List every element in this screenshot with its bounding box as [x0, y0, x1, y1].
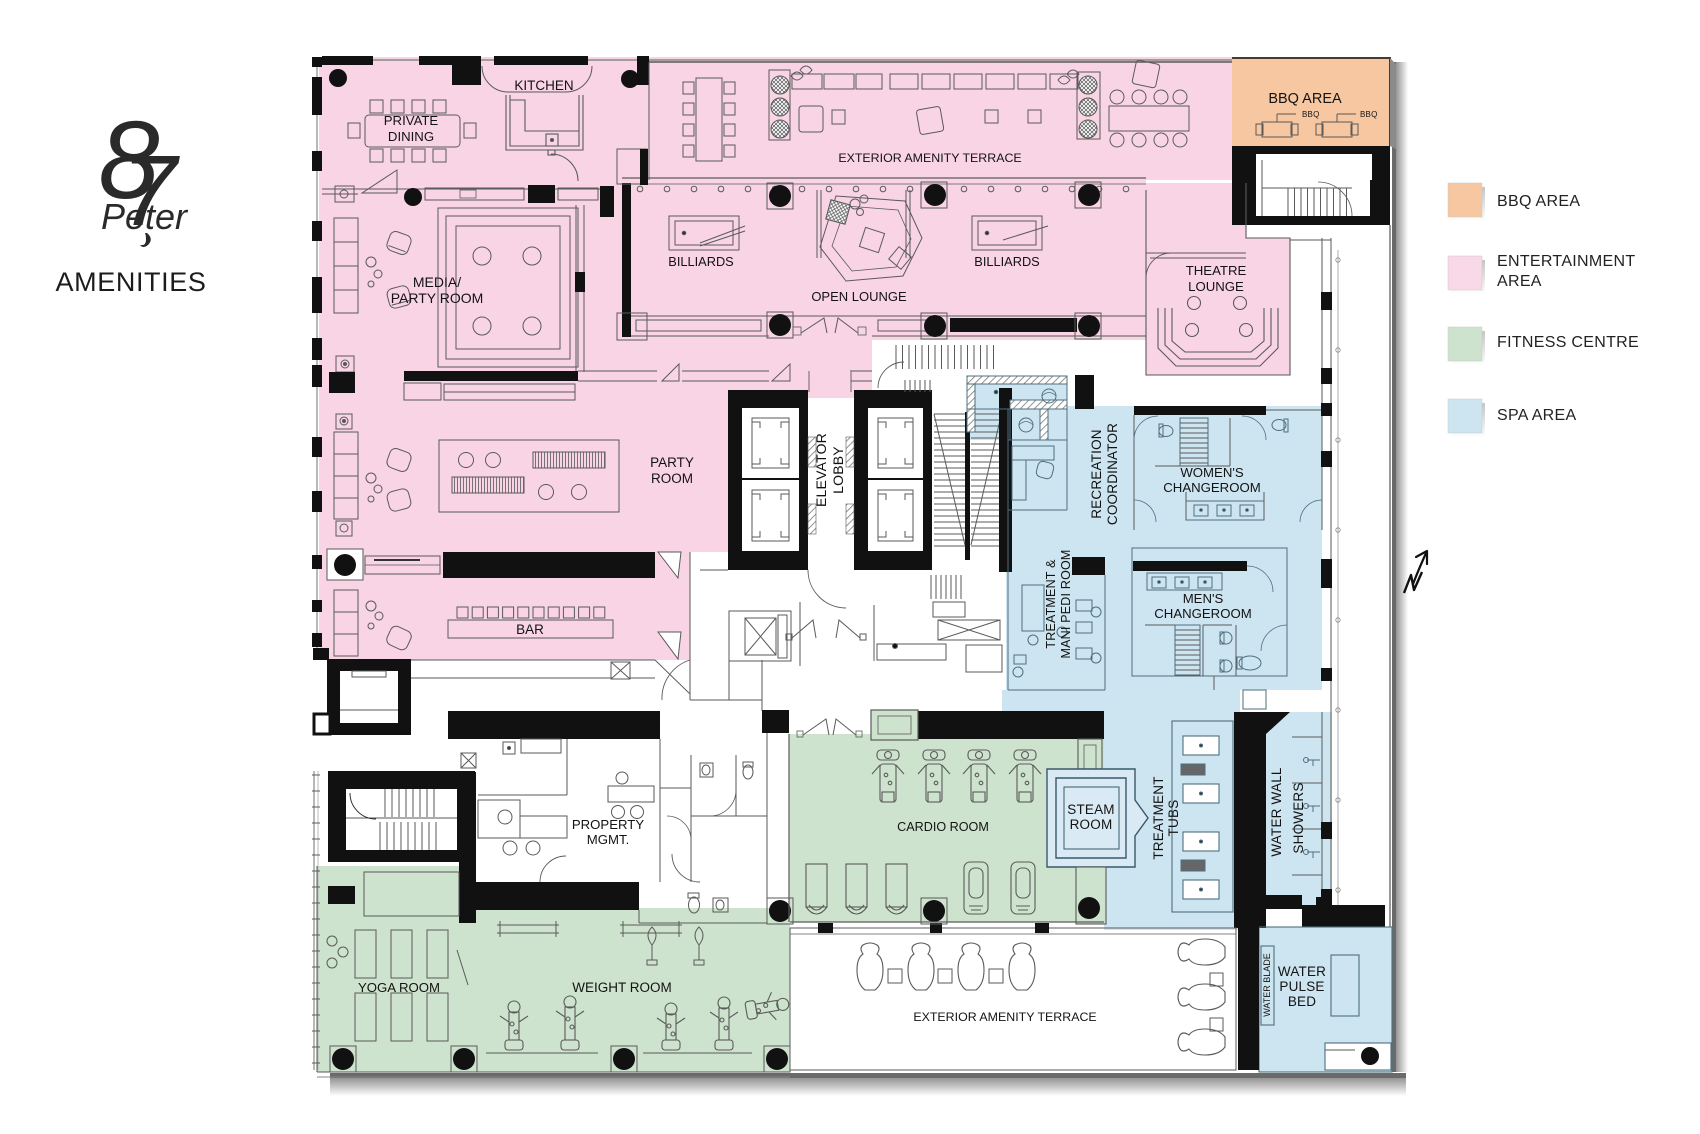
svg-text:ROOM: ROOM [1070, 817, 1113, 832]
svg-text:RECREATION: RECREATION [1089, 429, 1104, 519]
svg-text:SHOWERS: SHOWERS [1291, 782, 1306, 853]
svg-text:MANI PEDI ROOM: MANI PEDI ROOM [1059, 549, 1073, 658]
svg-text:BILLIARDS: BILLIARDS [974, 254, 1039, 269]
svg-text:MGMT.: MGMT. [587, 832, 630, 847]
svg-text:PROPERTY: PROPERTY [572, 817, 645, 832]
svg-text:YOGA ROOM: YOGA ROOM [358, 980, 440, 995]
svg-text:ENTERTAINMENT: ENTERTAINMENT [1497, 253, 1635, 270]
svg-text:CARDIO ROOM: CARDIO ROOM [897, 820, 989, 834]
svg-text:BBQ AREA: BBQ AREA [1497, 193, 1580, 210]
svg-text:COORDINATOR: COORDINATOR [1105, 423, 1120, 525]
svg-text:LOUNGE: LOUNGE [1188, 279, 1244, 294]
svg-text:CHANGEROOM: CHANGEROOM [1163, 480, 1260, 495]
svg-text:TUBS: TUBS [1166, 800, 1181, 837]
svg-text:TREATMENT: TREATMENT [1151, 776, 1166, 859]
svg-text:EXTERIOR AMENITY TERRACE: EXTERIOR AMENITY TERRACE [838, 151, 1021, 165]
svg-text:OPEN LOUNGE: OPEN LOUNGE [811, 289, 907, 304]
svg-text:BBQ AREA: BBQ AREA [1268, 91, 1342, 107]
svg-text:KITCHEN: KITCHEN [514, 78, 573, 93]
svg-text:WATER BLADE: WATER BLADE [1262, 953, 1272, 1017]
svg-text:WATER WALL: WATER WALL [1269, 767, 1284, 857]
svg-text:CHANGEROOM: CHANGEROOM [1154, 606, 1251, 621]
svg-text:BAR: BAR [516, 622, 544, 637]
svg-text:WEIGHT ROOM: WEIGHT ROOM [572, 980, 672, 995]
svg-text:SPA AREA: SPA AREA [1497, 407, 1577, 424]
svg-text:Peter: Peter [101, 196, 189, 237]
svg-text:BBQ: BBQ [1302, 110, 1320, 119]
svg-text:PARTY ROOM: PARTY ROOM [391, 290, 484, 306]
svg-text:EXTERIOR AMENITY TERRACE: EXTERIOR AMENITY TERRACE [913, 1010, 1096, 1024]
svg-text:TREATMENT &: TREATMENT & [1044, 559, 1058, 649]
svg-text:THEATRE: THEATRE [1186, 263, 1247, 278]
svg-text:BED: BED [1288, 994, 1316, 1009]
svg-text:ROOM: ROOM [651, 471, 693, 486]
svg-text:WOMEN'S: WOMEN'S [1180, 465, 1244, 480]
svg-text:PRIVATE: PRIVATE [384, 113, 439, 128]
svg-text:BILLIARDS: BILLIARDS [668, 254, 733, 269]
svg-text:PULSE: PULSE [1279, 979, 1324, 994]
svg-text:BBQ: BBQ [1360, 110, 1378, 119]
svg-text:PARTY: PARTY [650, 455, 694, 470]
svg-text:MEDIA/: MEDIA/ [413, 274, 461, 290]
svg-text:STEAM: STEAM [1067, 802, 1115, 817]
svg-text:DINING: DINING [388, 129, 434, 144]
svg-text:AREA: AREA [1497, 273, 1542, 290]
svg-text:FITNESS CENTRE: FITNESS CENTRE [1497, 334, 1639, 351]
svg-text:LOBBY: LOBBY [830, 446, 846, 494]
svg-text:AMENITIES: AMENITIES [56, 267, 207, 297]
svg-text:ELEVATOR: ELEVATOR [813, 433, 829, 507]
svg-text:MEN'S: MEN'S [1183, 591, 1224, 606]
svg-text:WATER: WATER [1278, 964, 1326, 979]
